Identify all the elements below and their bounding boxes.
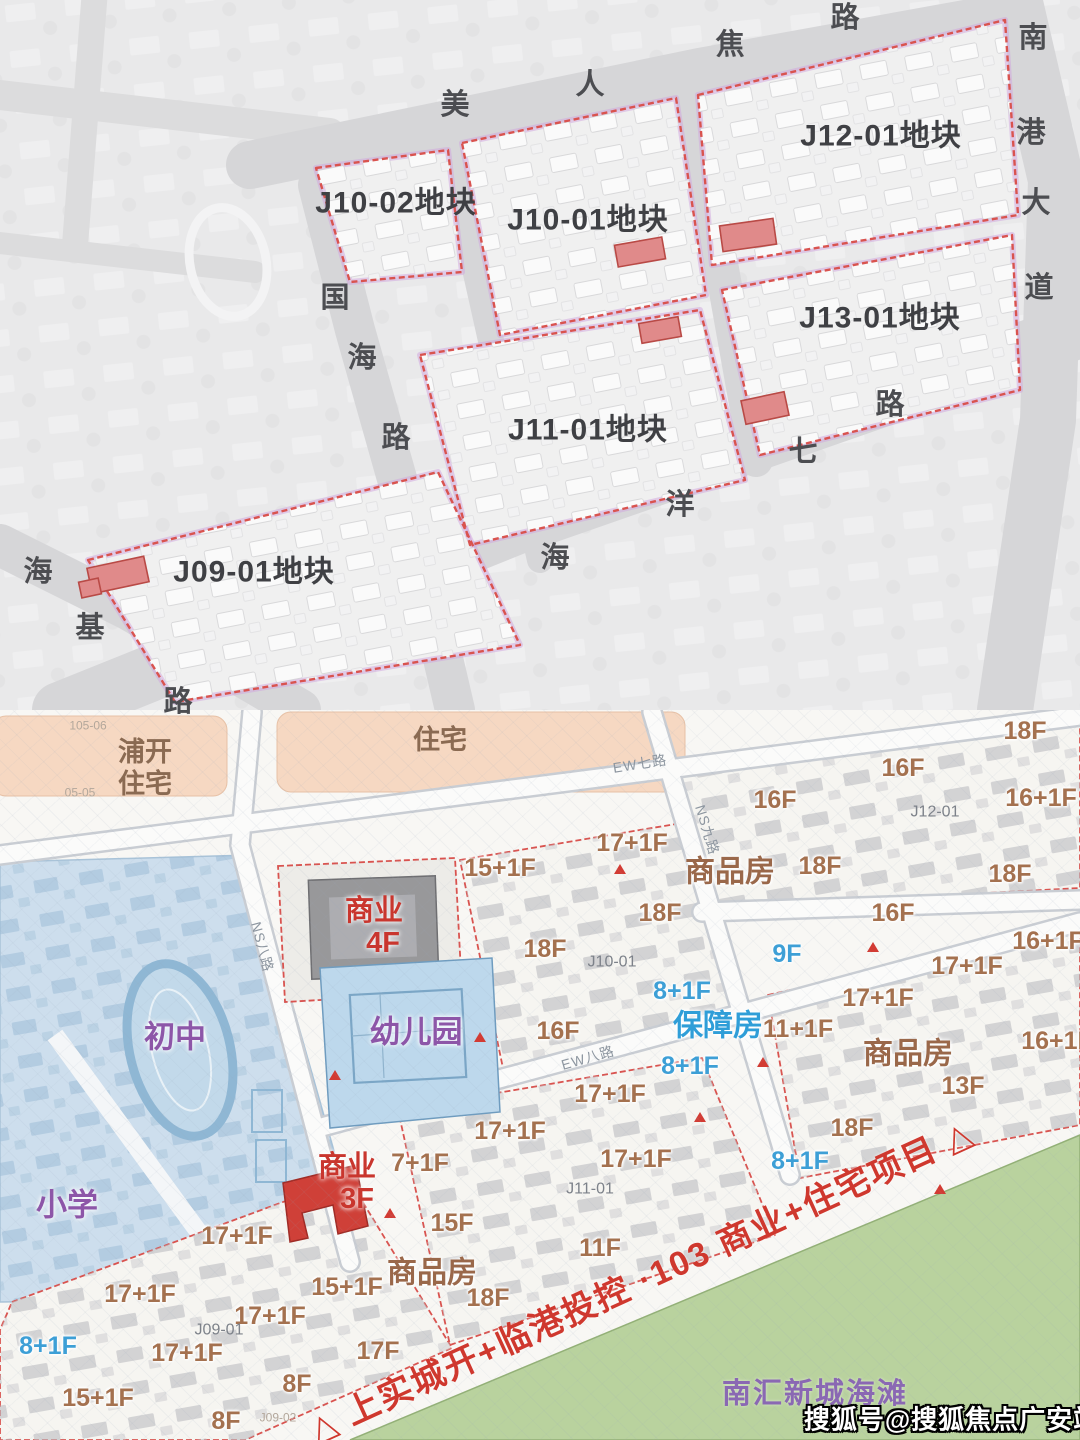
- road-name-char-海洋七路-1: 洋: [665, 490, 694, 520]
- road-name-char-海基路-1: 基: [75, 613, 104, 643]
- floor-label-17+1F: 17+1F: [474, 1118, 546, 1144]
- beige-label-住宅: 住宅: [413, 726, 467, 754]
- floor-label-17+1F: 17+1F: [201, 1223, 273, 1249]
- floor-label-13F: 13F: [941, 1073, 984, 1099]
- fblue-label-8+1F: 8+1F: [661, 1053, 719, 1079]
- floor-label-17+1F: 17+1F: [600, 1146, 672, 1172]
- floor-label-16+1F: 16+1F: [1021, 1028, 1080, 1054]
- plot-label-J10-02: J10-02地块: [315, 187, 476, 219]
- floor-label-11+1F: 11+1F: [763, 1016, 833, 1042]
- road-name-char-南港大道-3: 道: [1024, 273, 1053, 303]
- pid-label-J10-01: J10-01: [588, 955, 637, 972]
- beige-label-住宅: 住宅: [118, 770, 172, 798]
- tiny-label-05-05: 05-05: [65, 787, 96, 800]
- road-name-char-美人蕉路-0: 美: [440, 90, 469, 120]
- floor-label-17+1F: 17+1F: [596, 830, 668, 856]
- floor-label-17+1F: 17+1F: [234, 1303, 306, 1329]
- redbiz-label-3F: 3F: [340, 1184, 374, 1214]
- wm-label-搜狐号@搜狐焦点广安站: 搜狐号@搜狐焦点广安站: [804, 1406, 1080, 1433]
- floor-label-16+1F: 16+1F: [1012, 928, 1080, 954]
- floor-label-17+1F: 17+1F: [842, 985, 914, 1011]
- floor-label-16F: 16F: [881, 755, 924, 781]
- fblue-label-9F: 9F: [772, 941, 801, 967]
- road-name-char-美人蕉路-1: 人: [575, 70, 604, 100]
- pid-label-J09-01: J09-01: [195, 1323, 244, 1340]
- purple-label-小学: 小学: [36, 1190, 98, 1223]
- road-name-char-海洋七路-0: 海: [540, 543, 569, 573]
- floor-label-17+1F: 17+1F: [151, 1340, 223, 1366]
- bigbrown-label-商品房: 商品房: [685, 856, 775, 888]
- fblue-label-8+1F: 8+1F: [19, 1333, 77, 1359]
- floor-label-15+1F: 15+1F: [464, 855, 536, 881]
- site-plan-screenshot: J10-02地块J10-01地块J12-01地块J13-01地块J11-01地块…: [0, 0, 1080, 1440]
- bottom-map-detail-plan: 浦开住宅住宅105-0605-05初中小学幼儿园商业4F商业3F商品房商品房商品…: [0, 710, 1080, 1440]
- redbiz-label-4F: 4F: [366, 928, 400, 958]
- rsmall-label-EW八路: EW八路: [560, 1043, 616, 1072]
- road-name-char-海基路-0: 海: [23, 557, 52, 587]
- floor-label-18F: 18F: [798, 853, 841, 879]
- floor-label-15F: 15F: [430, 1210, 473, 1236]
- road-name-char-南港大道-0: 南: [1018, 23, 1047, 53]
- floor-label-18F: 18F: [638, 900, 681, 926]
- fblue-label-8+1F: 8+1F: [771, 1148, 829, 1174]
- purple-label-幼儿园: 幼儿园: [370, 1017, 463, 1050]
- fblue-label-8+1F: 8+1F: [653, 978, 711, 1004]
- floor-label-17+1F: 17+1F: [931, 953, 1003, 979]
- road-name-char-南港大道-1: 港: [1016, 118, 1045, 148]
- floor-label-18F: 18F: [1003, 718, 1046, 744]
- bigbrown-label-商品房: 商品房: [387, 1257, 477, 1289]
- top-map-labels: J10-02地块J10-01地块J12-01地块J13-01地块J11-01地块…: [0, 0, 1080, 710]
- floor-label-18F: 18F: [523, 936, 566, 962]
- road-name-char-国海路-1: 海: [347, 343, 376, 373]
- rsmall-label-NS九路: NS九路: [692, 803, 721, 856]
- road-name-char-海洋七路-2: 七: [788, 437, 817, 467]
- rsmall-label-EW七路: EW七路: [612, 752, 668, 775]
- plot-label-J12-01: J12-01地块: [800, 120, 961, 152]
- bottom-map-labels: 浦开住宅住宅105-0605-05初中小学幼儿园商业4F商业3F商品房商品房商品…: [0, 710, 1080, 1440]
- top-map-master-plan: J10-02地块J10-01地块J12-01地块J13-01地块J11-01地块…: [0, 0, 1080, 710]
- purple-label-初中: 初中: [144, 1022, 206, 1055]
- floor-label-11F: 11F: [579, 1235, 621, 1261]
- plot-label-J11-01: J11-01地块: [508, 414, 668, 446]
- redbiz-label-商业: 商业: [318, 1152, 376, 1182]
- road-name-char-美人蕉路-3: 路: [830, 3, 859, 33]
- floor-label-8F: 8F: [211, 1408, 240, 1434]
- beige-label-浦开: 浦开: [118, 738, 172, 766]
- road-name-char-美人蕉路-2: 焦: [715, 30, 744, 60]
- plot-label-J10-01: J10-01地块: [507, 204, 668, 236]
- floor-label-16F: 16F: [536, 1018, 579, 1044]
- floor-label-7+1F: 7+1F: [391, 1150, 449, 1176]
- floor-label-8F: 8F: [282, 1371, 311, 1397]
- floor-label-16F: 16F: [871, 900, 914, 926]
- floor-label-17F: 17F: [356, 1338, 399, 1364]
- plot-label-J09-01: J09-01地块: [173, 556, 334, 588]
- floor-label-18F: 18F: [466, 1285, 509, 1311]
- road-name-char-海洋七路-3: 路: [875, 390, 904, 420]
- pid-label-J11-01: J11-01: [566, 1182, 614, 1199]
- road-name-char-南港大道-2: 大: [1021, 188, 1050, 218]
- floor-label-15+1F: 15+1F: [62, 1385, 134, 1411]
- rsmall-label-NS八路: NS八路: [248, 920, 276, 974]
- floor-label-16+1F: 16+1F: [1005, 785, 1077, 811]
- bigblue-label-保障房: 保障房: [673, 1010, 763, 1042]
- floor-label-16F: 16F: [753, 787, 796, 813]
- tiny-label-105-06: 105-06: [69, 720, 106, 733]
- floor-label-18F: 18F: [988, 861, 1031, 887]
- plot-label-J13-01: J13-01地块: [799, 302, 960, 334]
- floor-label-17+1F: 17+1F: [574, 1081, 646, 1107]
- redbiz-label-商业: 商业: [345, 896, 403, 926]
- pid-label-J12-01: J12-01: [911, 805, 960, 822]
- road-name-char-国海路-2: 路: [381, 423, 410, 453]
- bigbrown-label-商品房: 商品房: [863, 1038, 953, 1070]
- tiny-label-J09-02: J09-02: [260, 1412, 297, 1425]
- road-name-char-国海路-0: 国: [320, 283, 349, 313]
- floor-label-18F: 18F: [830, 1115, 873, 1141]
- floor-label-15+1F: 15+1F: [311, 1274, 383, 1300]
- floor-label-17+1F: 17+1F: [104, 1281, 176, 1307]
